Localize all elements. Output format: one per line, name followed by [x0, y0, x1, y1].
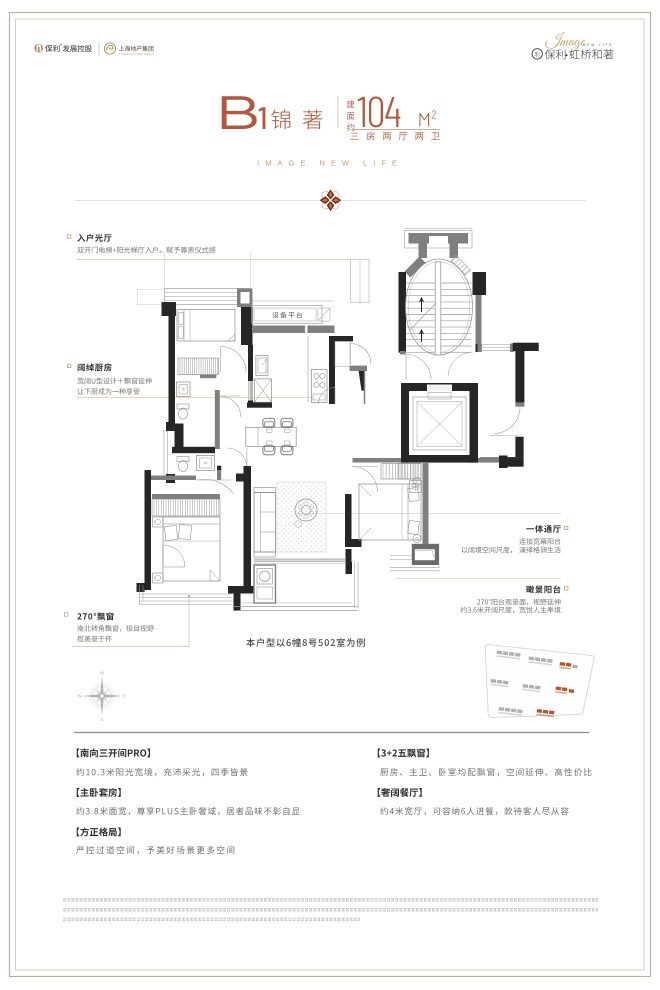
svg-text:S: S	[100, 717, 103, 722]
svg-text:NEW LIFE: NEW LIFE	[583, 43, 613, 47]
svg-text:IMAGE NEW LIFE: IMAGE NEW LIFE	[257, 159, 403, 168]
svg-text:SHANGHAI LAND GROUP: SHANGHAI LAND GROUP	[119, 53, 155, 56]
svg-text:W: W	[77, 694, 82, 699]
svg-text:E: E	[123, 694, 126, 699]
svg-text:N: N	[100, 671, 103, 676]
